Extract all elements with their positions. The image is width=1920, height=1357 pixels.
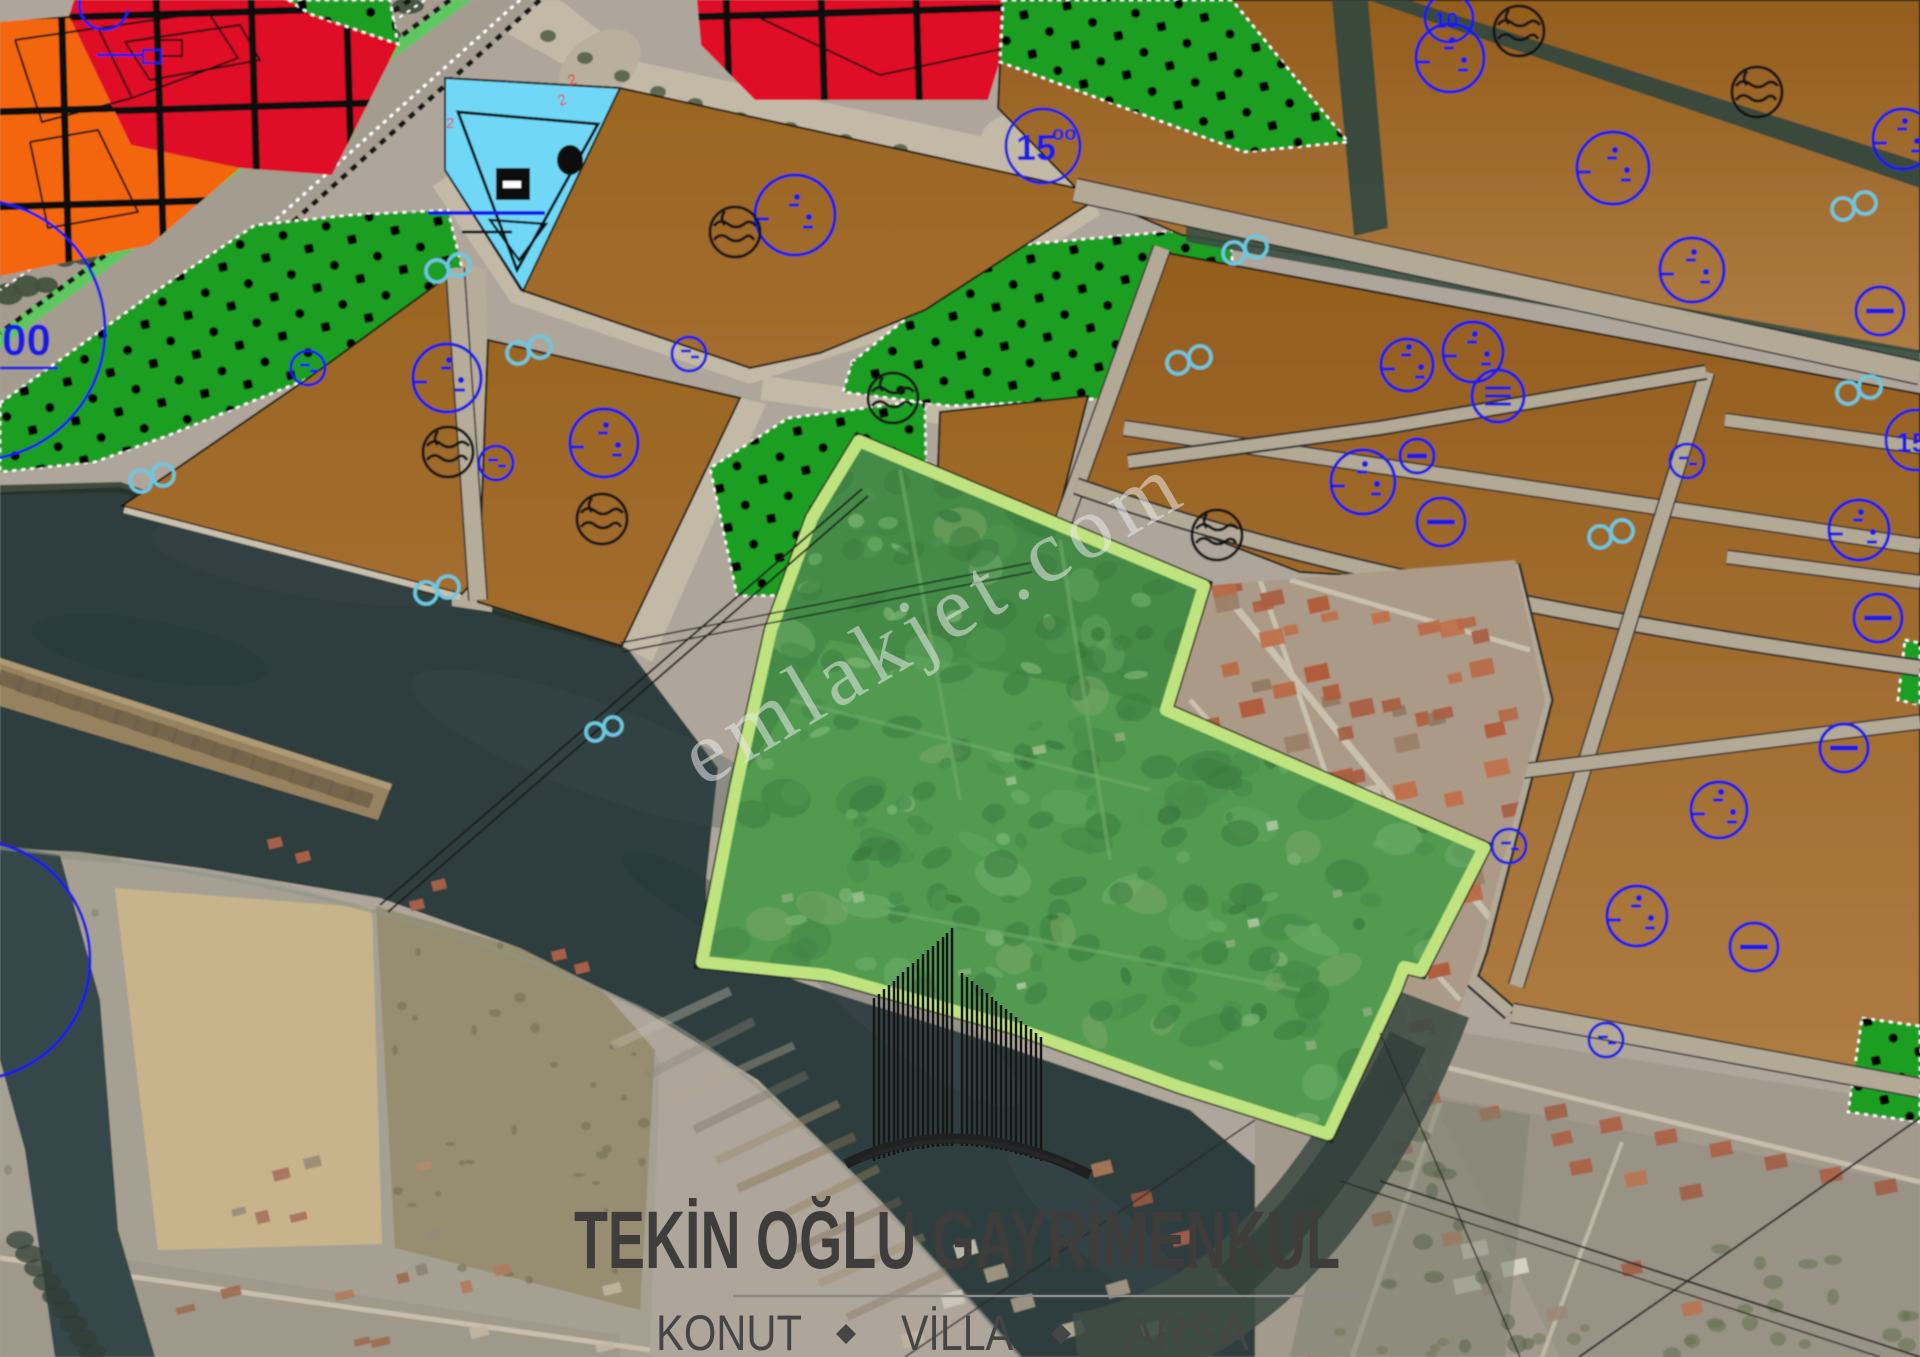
- svg-text:15: 15: [1016, 127, 1056, 168]
- svg-text:KONUT: KONUT: [656, 1305, 802, 1357]
- svg-text:2: 2: [446, 115, 454, 132]
- svg-text:TEKİN OĞLU GAYRİMENKUL: TEKİN OĞLU GAYRİMENKUL: [574, 1195, 1340, 1286]
- svg-text:ARSA: ARSA: [1125, 1305, 1250, 1357]
- svg-text:10: 10: [1434, 8, 1458, 33]
- svg-text:15: 15: [1896, 427, 1920, 458]
- svg-text:00: 00: [2, 316, 51, 365]
- svg-text:oo: oo: [1052, 123, 1076, 145]
- svg-text:VİLLA: VİLLA: [901, 1305, 1014, 1357]
